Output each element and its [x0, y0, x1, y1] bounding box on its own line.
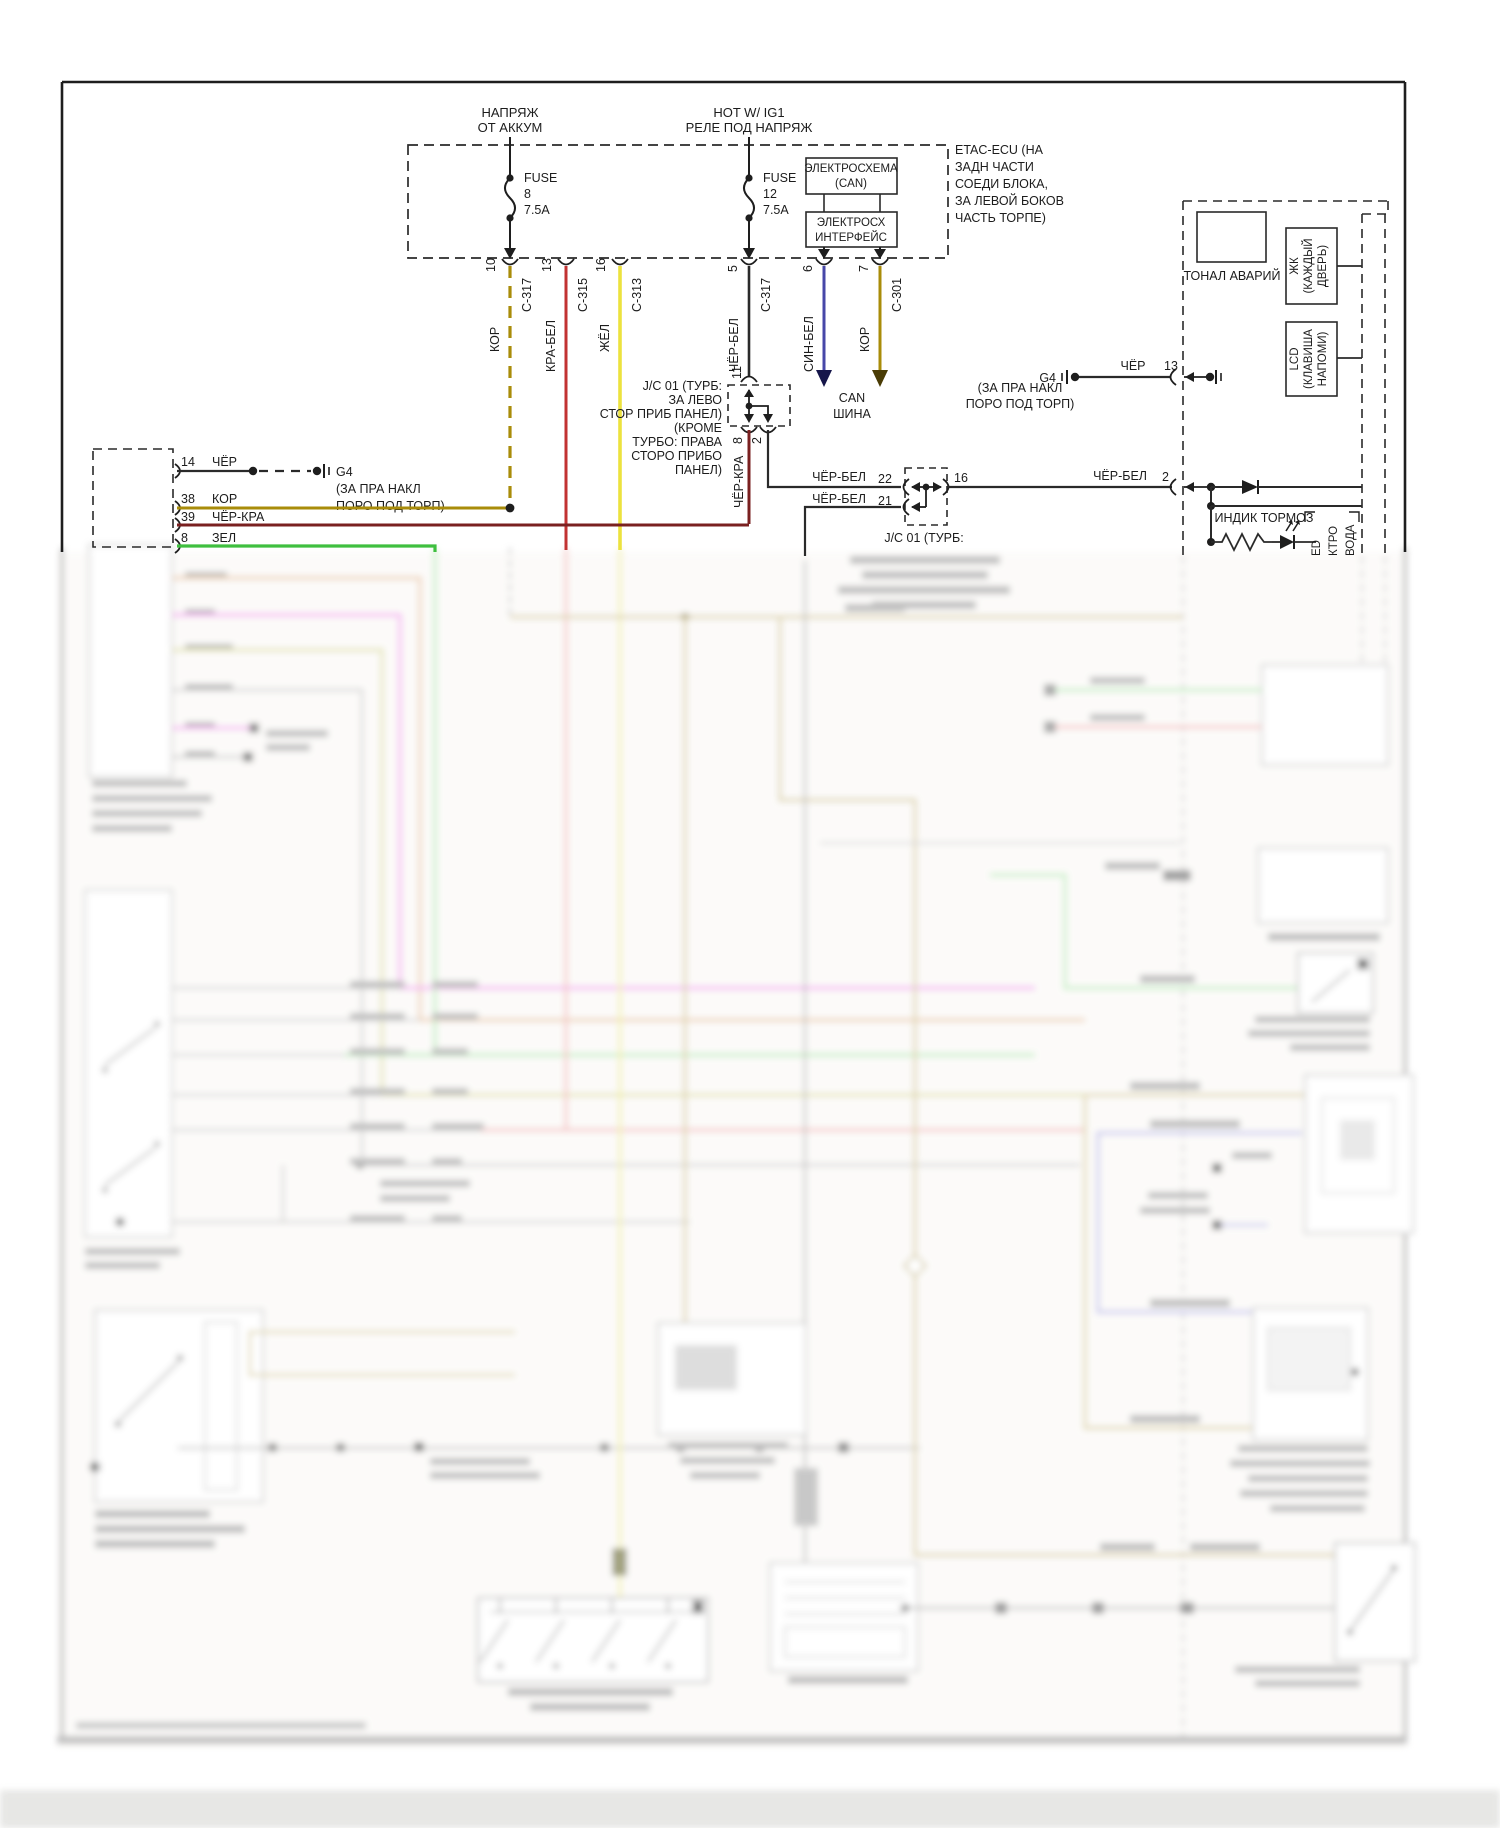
hazard-tone-box [1197, 212, 1266, 262]
pin8-wire: ЗЕЛ [212, 531, 236, 545]
svg-text:13: 13 [540, 258, 554, 272]
ground-left-name: G4 [336, 465, 353, 479]
svg-text:ДВЕРЬ): ДВЕРЬ) [1317, 245, 1329, 287]
can-bus-label: CAN [839, 391, 865, 405]
ignition-feed-label2: РЕЛЕ ПОД НАПРЯЖ [686, 120, 813, 135]
can-arrow-gold [872, 370, 888, 387]
hazard-tone-label: ТОНАЛ АВАРИЙ [1183, 268, 1280, 283]
ground-right-loc2: ПОРО ПОД ТОРП) [966, 397, 1075, 411]
left-connector-box [93, 449, 173, 547]
ground-right-wire: ЧЁР [1120, 359, 1145, 373]
pin14-wire: ЧЁР [212, 455, 237, 469]
ground-left-loc1: (ЗА ПРА НАКЛ [336, 482, 421, 496]
svg-text:16: 16 [594, 258, 608, 272]
svg-text:КОР: КОР [858, 327, 872, 352]
output-right-pin: 2 [1162, 470, 1169, 484]
fuse-8-icon [504, 137, 516, 259]
svg-text:ЖЁЛ: ЖЁЛ [598, 324, 612, 352]
svg-text:C-313: C-313 [630, 278, 644, 312]
svg-text:ED: ED [1311, 540, 1323, 556]
svg-text:КРА-БЕЛ: КРА-БЕЛ [544, 320, 558, 372]
interface-box-label2: ИНТЕРФЕЙС [815, 231, 887, 244]
svg-text:СТОРО ПРИБО: СТОРО ПРИБО [631, 449, 722, 463]
resistor-icon [1211, 534, 1272, 550]
pin39-wire: ЧЁР-КРА [212, 510, 265, 524]
battery-feed-label2: ОТ АККУМ [478, 120, 543, 135]
svg-text:5: 5 [726, 265, 740, 272]
pin14-number: 14 [181, 455, 195, 469]
svg-text:LCD: LCD [1289, 347, 1301, 370]
svg-text:C-317: C-317 [520, 278, 534, 312]
svg-text:ЗАДН ЧАСТИ: ЗАДН ЧАСТИ [955, 160, 1034, 174]
junction-kor [506, 504, 515, 513]
can-arrow-blue [816, 370, 832, 387]
svg-text:10: 10 [484, 258, 498, 272]
svg-text:ПАНЕЛ): ПАНЕЛ) [675, 463, 722, 477]
wire-pin8-zel [177, 546, 435, 552]
ignition-feed-label: HOT W/ IG1 [713, 105, 784, 120]
svg-text:11: 11 [730, 366, 744, 379]
fuse-8-rating: 7.5A [524, 203, 550, 217]
svg-text:ЧАСТЬ ТОРПЕ): ЧАСТЬ ТОРПЕ) [955, 211, 1046, 225]
svg-text:СИН-БЕЛ: СИН-БЕЛ [802, 316, 816, 372]
etac-ecu-location-text: ETAC-ECU (НА ЗАДН ЧАСТИ СОЕДИ БЛОКА, ЗА … [955, 143, 1064, 225]
pin8-number: 8 [181, 531, 188, 545]
fuse-8-number: 8 [524, 187, 531, 201]
fuse-12-icon [743, 137, 755, 259]
svg-text:ЧЁР-БЕЛ: ЧЁР-БЕЛ [727, 318, 741, 372]
fuse-12-number: 12 [763, 187, 777, 201]
svg-text:2: 2 [750, 437, 764, 444]
ground-left-loc2: ПОРО ПОД ТОРП) [336, 499, 445, 513]
output-right-wire: ЧЁР-БЕЛ [1093, 469, 1147, 483]
fuse-12-rating: 7.5A [763, 203, 789, 217]
svg-text:СОЕДИ БЛОКА,: СОЕДИ БЛОКА, [955, 177, 1048, 191]
pin38-wire: КОР [212, 492, 237, 506]
wire-cher-kra-label: ЧЁР-КРА [732, 455, 746, 508]
wiring-diagram-page: НАПРЯЖ ОТ АККУМ HOT W/ IG1 РЕЛЕ ПОД НАПР… [0, 0, 1500, 1828]
jc1-location-text: J/C 01 (ТУРБ: ЗА ЛЕВО СТОР ПРИБ ПАНЕЛ) (… [600, 379, 723, 477]
fuse-12-label: FUSE [763, 171, 796, 185]
svg-text:ЖК: ЖК [1289, 257, 1301, 275]
top-connector-pins [502, 259, 888, 265]
svg-text:J/C 01 (ТУРБ:: J/C 01 (ТУРБ: [643, 379, 722, 393]
svg-text:(КАЖДЫЙ: (КАЖДЫЙ [1302, 238, 1315, 293]
jc2-in1-pin: 22 [878, 472, 892, 486]
can-box-label2: (CAN) [835, 178, 867, 190]
svg-text:(КЛАВИША: (КЛАВИША [1303, 329, 1315, 389]
ground-left-run [177, 464, 329, 478]
svg-text:НАПОМИ): НАПОМИ) [1317, 331, 1329, 386]
svg-text:КТРО: КТРО [1328, 526, 1340, 556]
jc1-joint-connector: 11 8 2 [728, 366, 790, 444]
jc2-in2-wire: ЧЁР-БЕЛ [812, 492, 866, 506]
ground-right-pin: 13 [1164, 359, 1178, 373]
ground-right-loc1: (ЗА ПРА НАКЛ [978, 381, 1063, 395]
top-wire-color-labels: КОР КРА-БЕЛ ЖЁЛ ЧЁР-БЕЛ СИН-БЕЛ КОР [488, 316, 872, 372]
svg-text:C-301: C-301 [890, 278, 904, 312]
pin39-number: 39 [181, 510, 195, 524]
svg-text:7: 7 [857, 265, 871, 272]
top-pin-numbers: 10 13 16 5 6 7 [484, 258, 871, 272]
svg-text:C-317: C-317 [759, 278, 773, 312]
svg-text:ETAC-ECU (НА: ETAC-ECU (НА [955, 143, 1044, 157]
can-bus-label2: ШИНА [833, 407, 871, 421]
jc2-label: J/C 01 (ТУРБ: [884, 531, 963, 545]
diode-icon [1211, 480, 1362, 494]
jc2-out-pin: 16 [954, 471, 968, 485]
output-right-connector [1171, 479, 1216, 495]
pin38-number: 38 [181, 492, 195, 506]
svg-text:ВОДА: ВОДА [1345, 524, 1357, 556]
blurred-lower-schematic [0, 545, 1500, 1828]
wiring-diagram-canvas: НАПРЯЖ ОТ АККУМ HOT W/ IG1 РЕЛЕ ПОД НАПР… [0, 0, 1500, 1828]
svg-text:C-315: C-315 [576, 278, 590, 312]
svg-text:ЗА ЛЕВО: ЗА ЛЕВО [668, 393, 722, 407]
svg-text:КОР: КОР [488, 327, 502, 352]
svg-text:8: 8 [731, 437, 745, 444]
jc2-in1-wire: ЧЁР-БЕЛ [812, 470, 866, 484]
interface-box-label: ЭЛЕКТРОСХ [817, 217, 886, 229]
can-box-label: ЭЛЕКТРОСХЕМА [804, 163, 898, 175]
svg-text:СТОР ПРИБ ПАНЕЛ): СТОР ПРИБ ПАНЕЛ) [600, 407, 722, 421]
svg-text:ЗА ЛЕВОЙ БОКОВ: ЗА ЛЕВОЙ БОКОВ [955, 193, 1064, 208]
fuse-8-label: FUSE [524, 171, 557, 185]
jc2-joint-connector [904, 468, 949, 525]
svg-text:ТУРБО: ПРАВА: ТУРБО: ПРАВА [632, 435, 722, 449]
top-connector-codes: C-317 C-315 C-313 C-317 C-301 [520, 278, 904, 312]
svg-text:(КРОМЕ: (КРОМЕ [674, 421, 722, 435]
sharp-upper-schematic: НАПРЯЖ ОТ АККУМ HOT W/ IG1 РЕЛЕ ПОД НАПР… [62, 82, 1405, 556]
battery-feed-label: НАПРЯЖ [481, 105, 538, 120]
svg-text:6: 6 [801, 265, 815, 272]
